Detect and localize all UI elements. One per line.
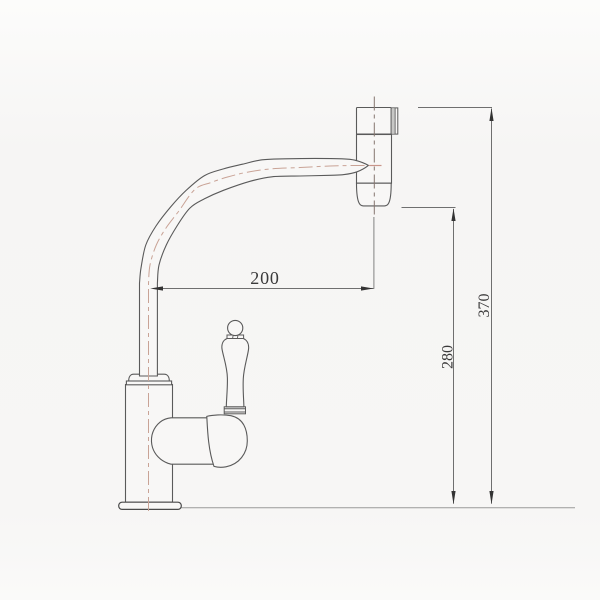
svg-text:200: 200 <box>250 268 279 288</box>
svg-text:370: 370 <box>476 294 493 318</box>
svg-text:280: 280 <box>439 345 456 369</box>
